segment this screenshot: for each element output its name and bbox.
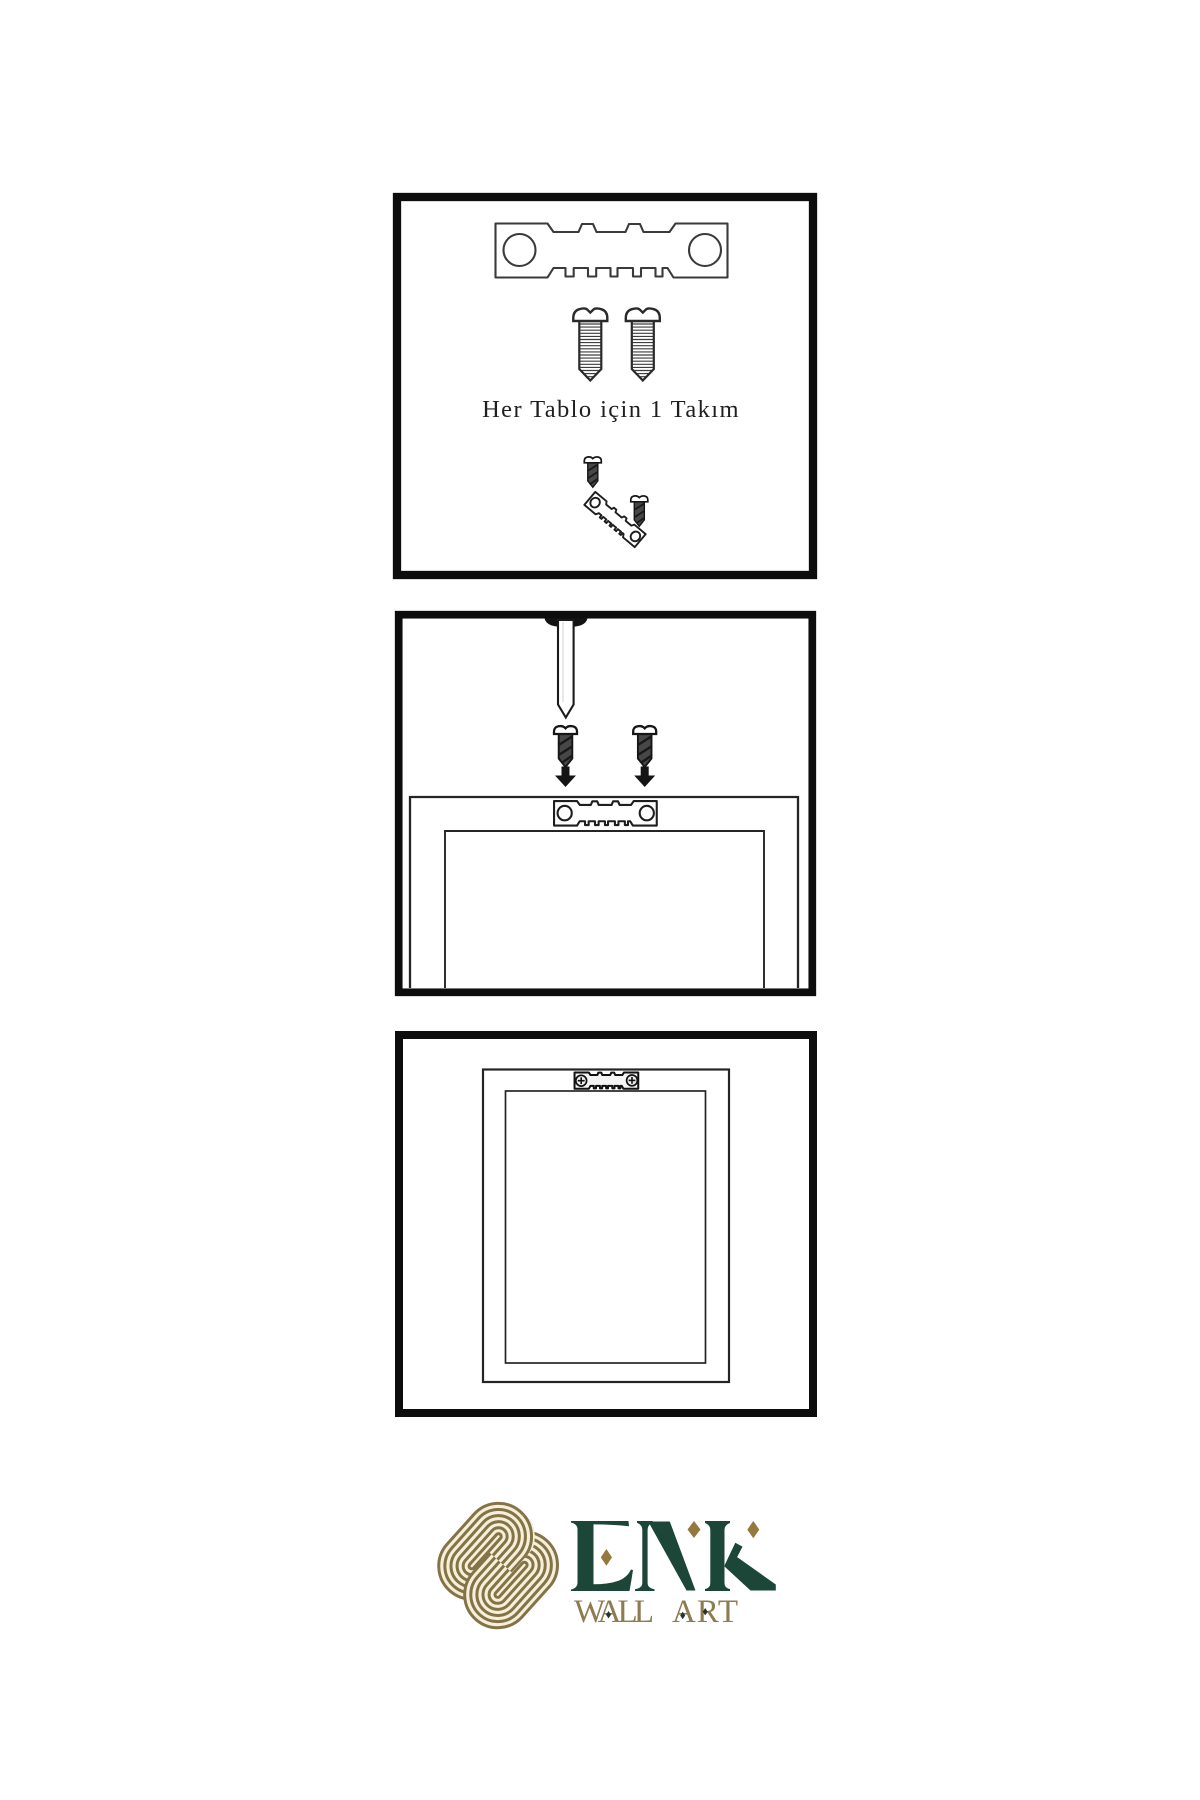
- svg-text:Her Tablo için 1 Takım: Her Tablo için 1 Takım: [482, 396, 740, 423]
- svg-text:WALL: WALL: [574, 1594, 654, 1630]
